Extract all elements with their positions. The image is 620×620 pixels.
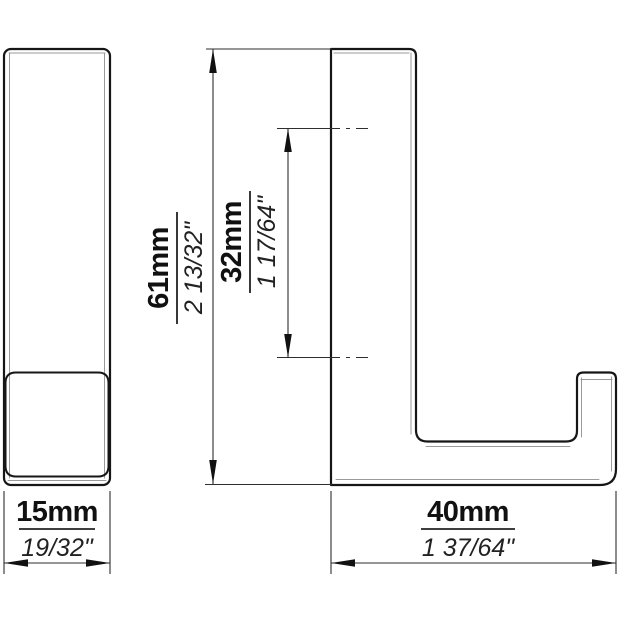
front-view-outline [4, 49, 110, 485]
depth-label: 40mm 1 37/64" [421, 496, 515, 562]
depth-arrow-right-icon [592, 559, 616, 567]
front-view [4, 49, 110, 485]
width-label-inch: 19/32" [21, 534, 94, 562]
technical-drawing-canvas: 61mm 2 13/32" 32mm 1 17/64" 15mm [0, 0, 620, 620]
hole-spacing-arrow-up-icon [284, 129, 292, 153]
height-label-mm: 61mm [143, 227, 175, 309]
front-view-lip-outline [6, 373, 109, 477]
width-label-mm: 15mm [16, 496, 98, 528]
hole-spacing-label: 32mm 1 17/64" [216, 191, 281, 293]
side-view-outline [331, 49, 616, 485]
depth-label-inch: 1 37/64" [422, 534, 515, 562]
height-label-inch: 2 13/32" [180, 221, 208, 315]
depth-arrow-left-icon [331, 559, 355, 567]
hook-drawing: 61mm 2 13/32" 32mm 1 17/64" 15mm [0, 0, 620, 620]
height-arrow-down-icon [209, 460, 217, 484]
depth-label-mm: 40mm [427, 496, 509, 528]
width-dimension: 15mm 19/32" [4, 491, 110, 574]
depth-dimension: 40mm 1 37/64" [331, 491, 616, 574]
hole-spacing-dimension: 32mm 1 17/64" [216, 129, 292, 358]
hole-spacing-label-mm: 32mm [216, 201, 248, 283]
width-label: 15mm 19/32" [16, 496, 98, 562]
height-label: 61mm 2 13/32" [143, 212, 208, 324]
hole-spacing-label-inch: 1 17/64" [253, 195, 281, 288]
height-arrow-up-icon [209, 49, 217, 73]
hole-spacing-arrow-down-icon [284, 334, 292, 358]
side-view [277, 49, 616, 485]
